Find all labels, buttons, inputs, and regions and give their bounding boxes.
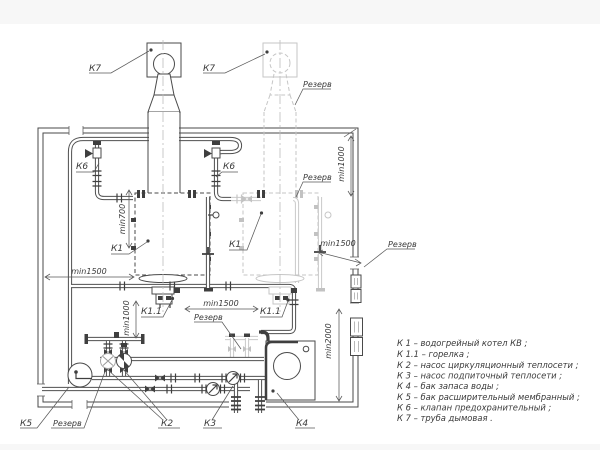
label-k5: К5 xyxy=(20,419,32,429)
label-k7-right: К7 xyxy=(203,64,215,74)
dim-min1500-right: min1500 xyxy=(320,239,355,248)
label-k1-right: К1 xyxy=(229,240,241,250)
legend-item-k4: К 4 – бак запаса воды ; xyxy=(397,381,499,391)
legend-item-k2: К 2 – насос циркуляционный теплосети ; xyxy=(397,360,579,370)
top-margin-band xyxy=(0,0,600,24)
label-reserve-chimney: Резерв xyxy=(303,80,332,89)
label-k6-left: К6 xyxy=(76,162,88,172)
safety-valve-left-k6 xyxy=(85,141,101,158)
feed-pump-k3-a xyxy=(227,372,240,385)
dim-min1000-top: min1000 xyxy=(337,146,346,181)
dim-min1500-mid: min1500 xyxy=(203,299,238,308)
bottom-margin-band xyxy=(0,444,600,450)
label-k11-left: К1.1 xyxy=(141,307,162,317)
label-k4: К4 xyxy=(296,419,308,429)
electrical-cabinet xyxy=(351,338,363,356)
label-reserve-wall: Резерв xyxy=(388,240,417,249)
electrical-cabinet xyxy=(351,318,363,336)
water-tank-k4 xyxy=(266,341,315,400)
valve-handle xyxy=(202,247,214,254)
label-k7-left: К7 xyxy=(89,64,101,74)
leader-dot xyxy=(171,297,174,300)
dim-min2000: min2000 xyxy=(324,323,333,358)
chimney-left xyxy=(147,43,181,193)
feed-pump-k3-b xyxy=(207,383,220,396)
legend-item-k6: К 6 – клапан предохранительный ; xyxy=(397,403,551,413)
leader-dot xyxy=(149,48,152,51)
boiler-room-plan-drawing: К7 К7 Резерв К6 К6 К1 К1 Резерв Резерв К… xyxy=(0,0,600,450)
legend-item-k3: К 3 – насос подпиточный теплосети ; xyxy=(397,371,562,381)
electrical-cabinet xyxy=(351,275,361,288)
legend-item-k11: К 1.1 – горелка ; xyxy=(397,349,470,359)
leader-dot xyxy=(271,389,274,392)
legend-item-k1: К 1 – водогрейный котел КВ ; xyxy=(397,338,528,348)
label-k6-right: К6 xyxy=(223,162,235,172)
leader-dot xyxy=(260,211,263,214)
leader-dot xyxy=(265,50,268,53)
label-reserve-boiler: Резерв xyxy=(303,173,332,182)
label-k3: К3 xyxy=(204,419,216,429)
boiler-room-plan-screenshot: К7 К7 Резерв К6 К6 К1 К1 Резерв Резерв К… xyxy=(0,0,600,450)
dim-min1500-left: min1500 xyxy=(71,267,106,276)
expansion-tank-k5 xyxy=(68,363,92,387)
dim-min700: min700 xyxy=(118,204,127,234)
legend-item-k7: К 7 – труба дымовая . xyxy=(397,413,493,423)
circulation-pump-reserve xyxy=(101,354,116,369)
circulation-pump-k2 xyxy=(117,343,132,369)
electrical-cabinet xyxy=(351,290,361,303)
axis-centerlines xyxy=(163,40,280,312)
legend: К 1 – водогрейный котел КВ ; К 1.1 – гор… xyxy=(397,338,580,423)
legend-item-k5: К 5 – бак расширительный мембранный ; xyxy=(397,392,580,402)
label-k1-left: К1 xyxy=(111,244,123,254)
label-reserve-bottom: Резерв xyxy=(53,419,82,428)
label-k2: К2 xyxy=(161,419,173,429)
label-k11-right: К1.1 xyxy=(260,307,281,317)
safety-valve-right-k6 xyxy=(204,141,220,158)
label-reserve-feed: Резерв xyxy=(194,313,223,322)
dim-min1000-pumps: min1000 xyxy=(122,300,131,335)
burner-left-k11 xyxy=(152,287,180,308)
